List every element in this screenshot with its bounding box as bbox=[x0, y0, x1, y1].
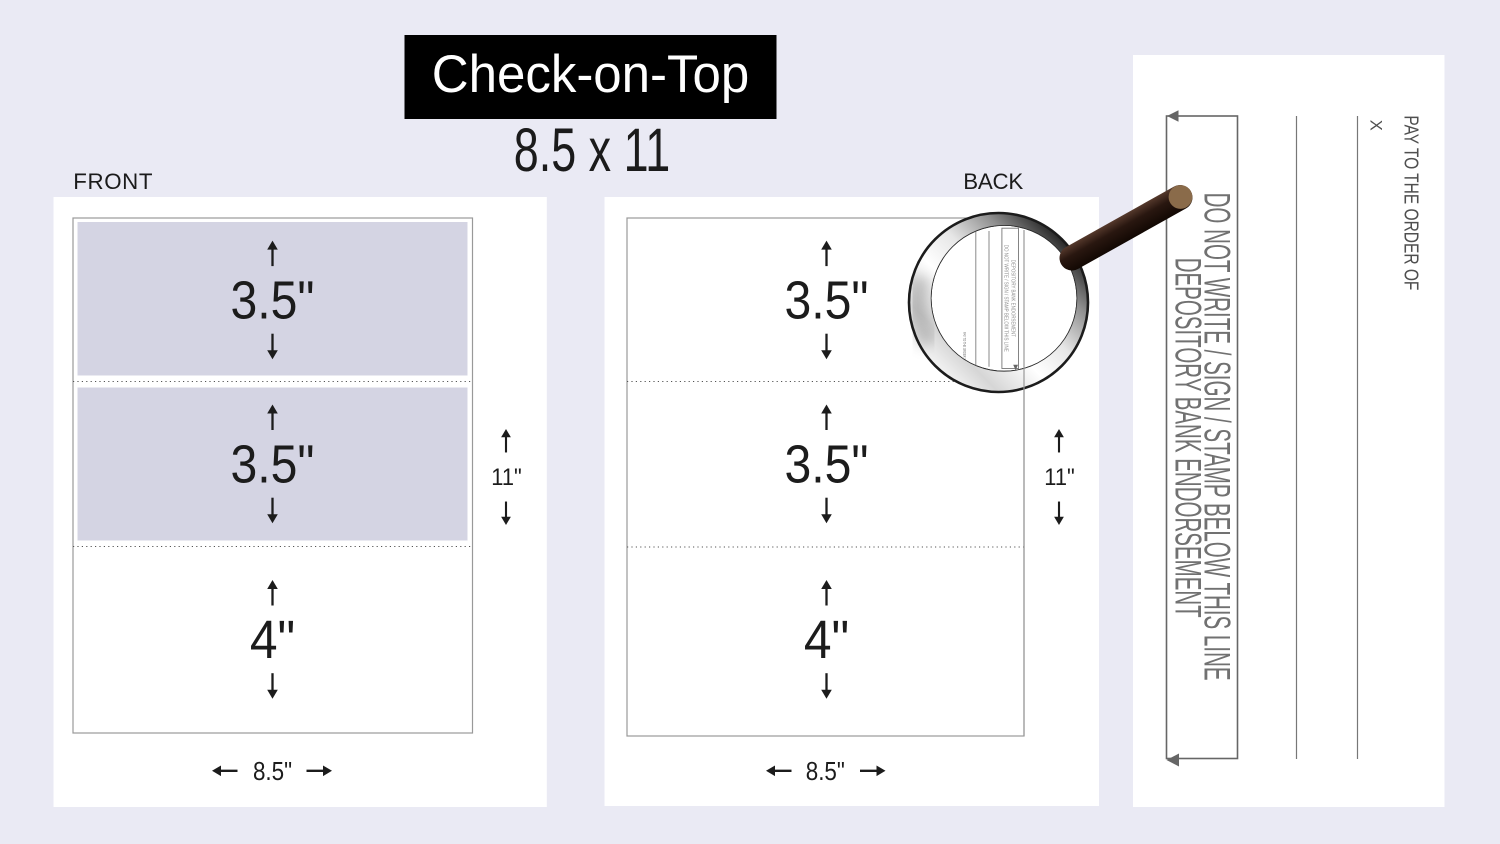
svg-text:PAY TO THE ORDER OF: PAY TO THE ORDER OF bbox=[962, 332, 967, 362]
svg-text:8.5": 8.5" bbox=[806, 757, 845, 786]
svg-text:Check-on-Top: Check-on-Top bbox=[432, 44, 750, 103]
svg-text:X: X bbox=[1367, 120, 1385, 131]
svg-text:3.5": 3.5" bbox=[784, 434, 868, 494]
svg-text:8.5 x 11: 8.5 x 11 bbox=[514, 116, 670, 184]
svg-text:11": 11" bbox=[1044, 463, 1074, 490]
svg-text:4": 4" bbox=[804, 609, 849, 669]
svg-text:4": 4" bbox=[250, 609, 295, 669]
svg-text:DEPOSITORY BANK ENDORSEMENT: DEPOSITORY BANK ENDORSEMENT bbox=[1010, 260, 1016, 338]
svg-text:3.5": 3.5" bbox=[230, 270, 314, 330]
svg-text:DO NOT WRITE / SIGN / STAMP BE: DO NOT WRITE / SIGN / STAMP BELOW THIS L… bbox=[1002, 245, 1008, 352]
svg-text:3.5": 3.5" bbox=[230, 434, 314, 494]
svg-text:8.5": 8.5" bbox=[253, 757, 292, 786]
svg-text:3.5": 3.5" bbox=[784, 270, 868, 330]
svg-text:FRONT: FRONT bbox=[73, 169, 153, 194]
svg-text:PAY TO THE ORDER OF: PAY TO THE ORDER OF bbox=[1399, 115, 1422, 290]
svg-text:11": 11" bbox=[491, 463, 521, 490]
svg-text:BACK: BACK bbox=[963, 169, 1023, 194]
svg-text:DEPOSITORY BANK ENDORSEMENT: DEPOSITORY BANK ENDORSEMENT bbox=[1168, 258, 1209, 618]
